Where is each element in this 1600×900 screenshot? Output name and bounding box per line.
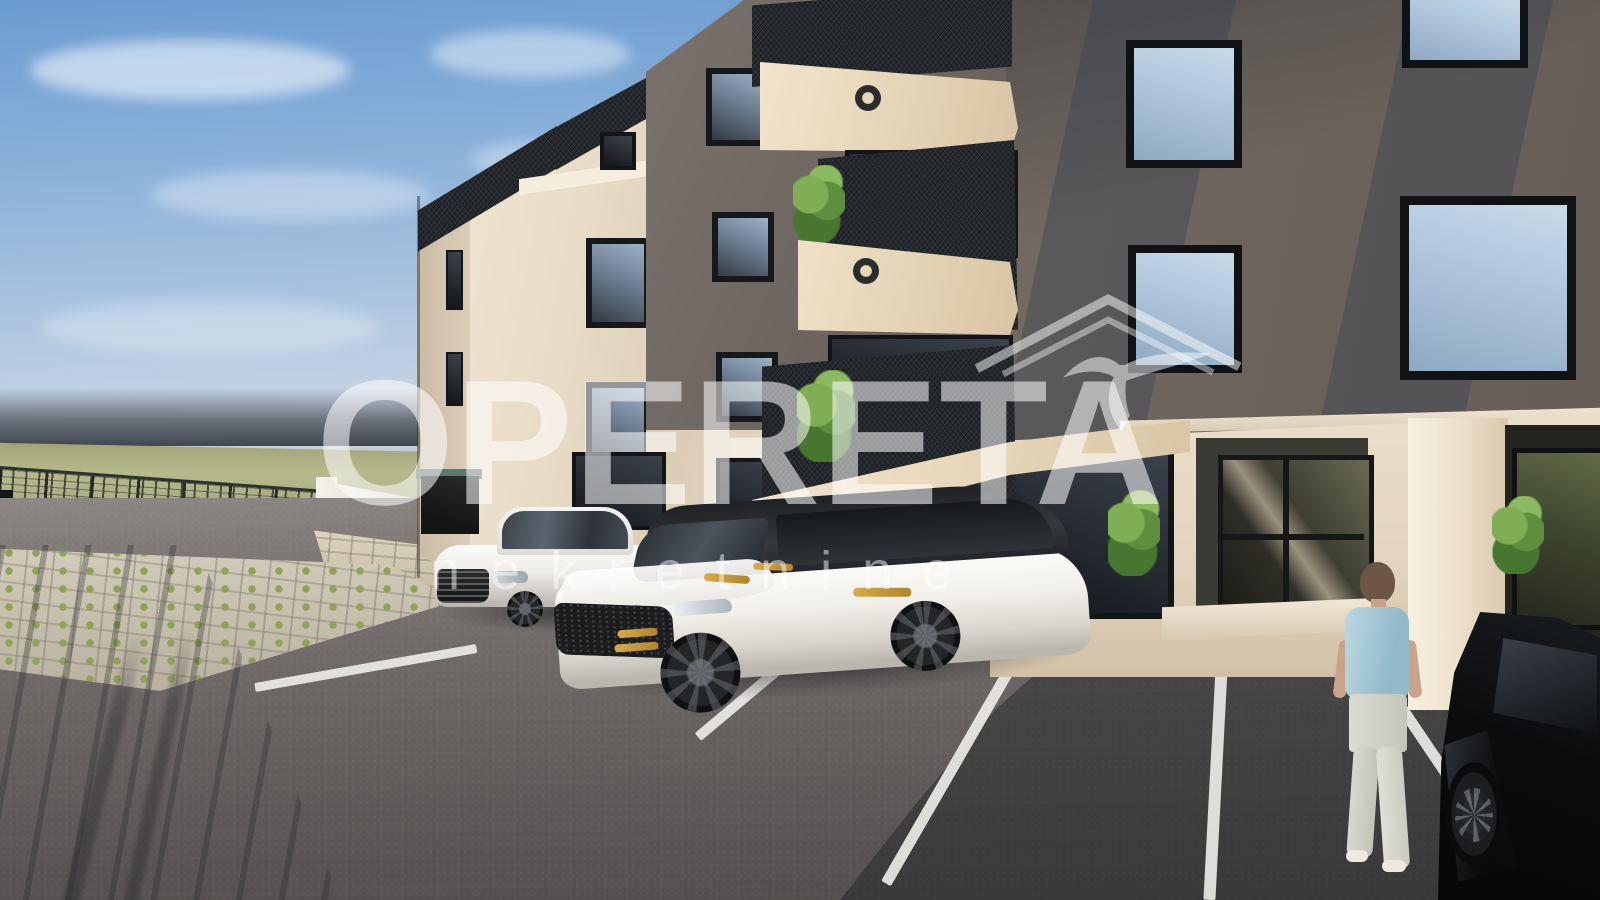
door-mullion xyxy=(1283,455,1289,605)
cloud xyxy=(30,40,350,100)
cloud xyxy=(430,30,630,78)
window xyxy=(1402,0,1528,68)
balcony-ceiling-light xyxy=(853,258,879,284)
balcony-plant xyxy=(793,165,845,243)
cloud xyxy=(150,170,430,220)
balcony-ceiling-light xyxy=(855,85,881,111)
window xyxy=(1400,196,1576,380)
window xyxy=(712,212,774,282)
door-rail xyxy=(1218,534,1364,540)
woman-shoe xyxy=(1346,850,1368,862)
black-coupe xyxy=(1438,612,1600,900)
watermark-subtitle: nekretnine xyxy=(430,544,982,598)
potted-plant xyxy=(1492,496,1544,574)
woman-leg xyxy=(1376,746,1410,870)
woman-shoe xyxy=(1382,860,1406,872)
window xyxy=(586,238,650,328)
house-swallow-logo-icon xyxy=(955,288,1265,438)
window xyxy=(1126,40,1242,168)
window xyxy=(600,132,636,170)
black-coupe-rim xyxy=(1455,788,1493,842)
woman-hair xyxy=(1360,562,1395,603)
side-window xyxy=(446,250,463,310)
woman-pants xyxy=(1349,694,1407,752)
woman-shirt xyxy=(1345,607,1409,699)
woman-walking xyxy=(1332,562,1426,867)
architectural-render-scene: OPERETA nekretnine xyxy=(0,0,1600,900)
woman-leg xyxy=(1346,746,1380,858)
